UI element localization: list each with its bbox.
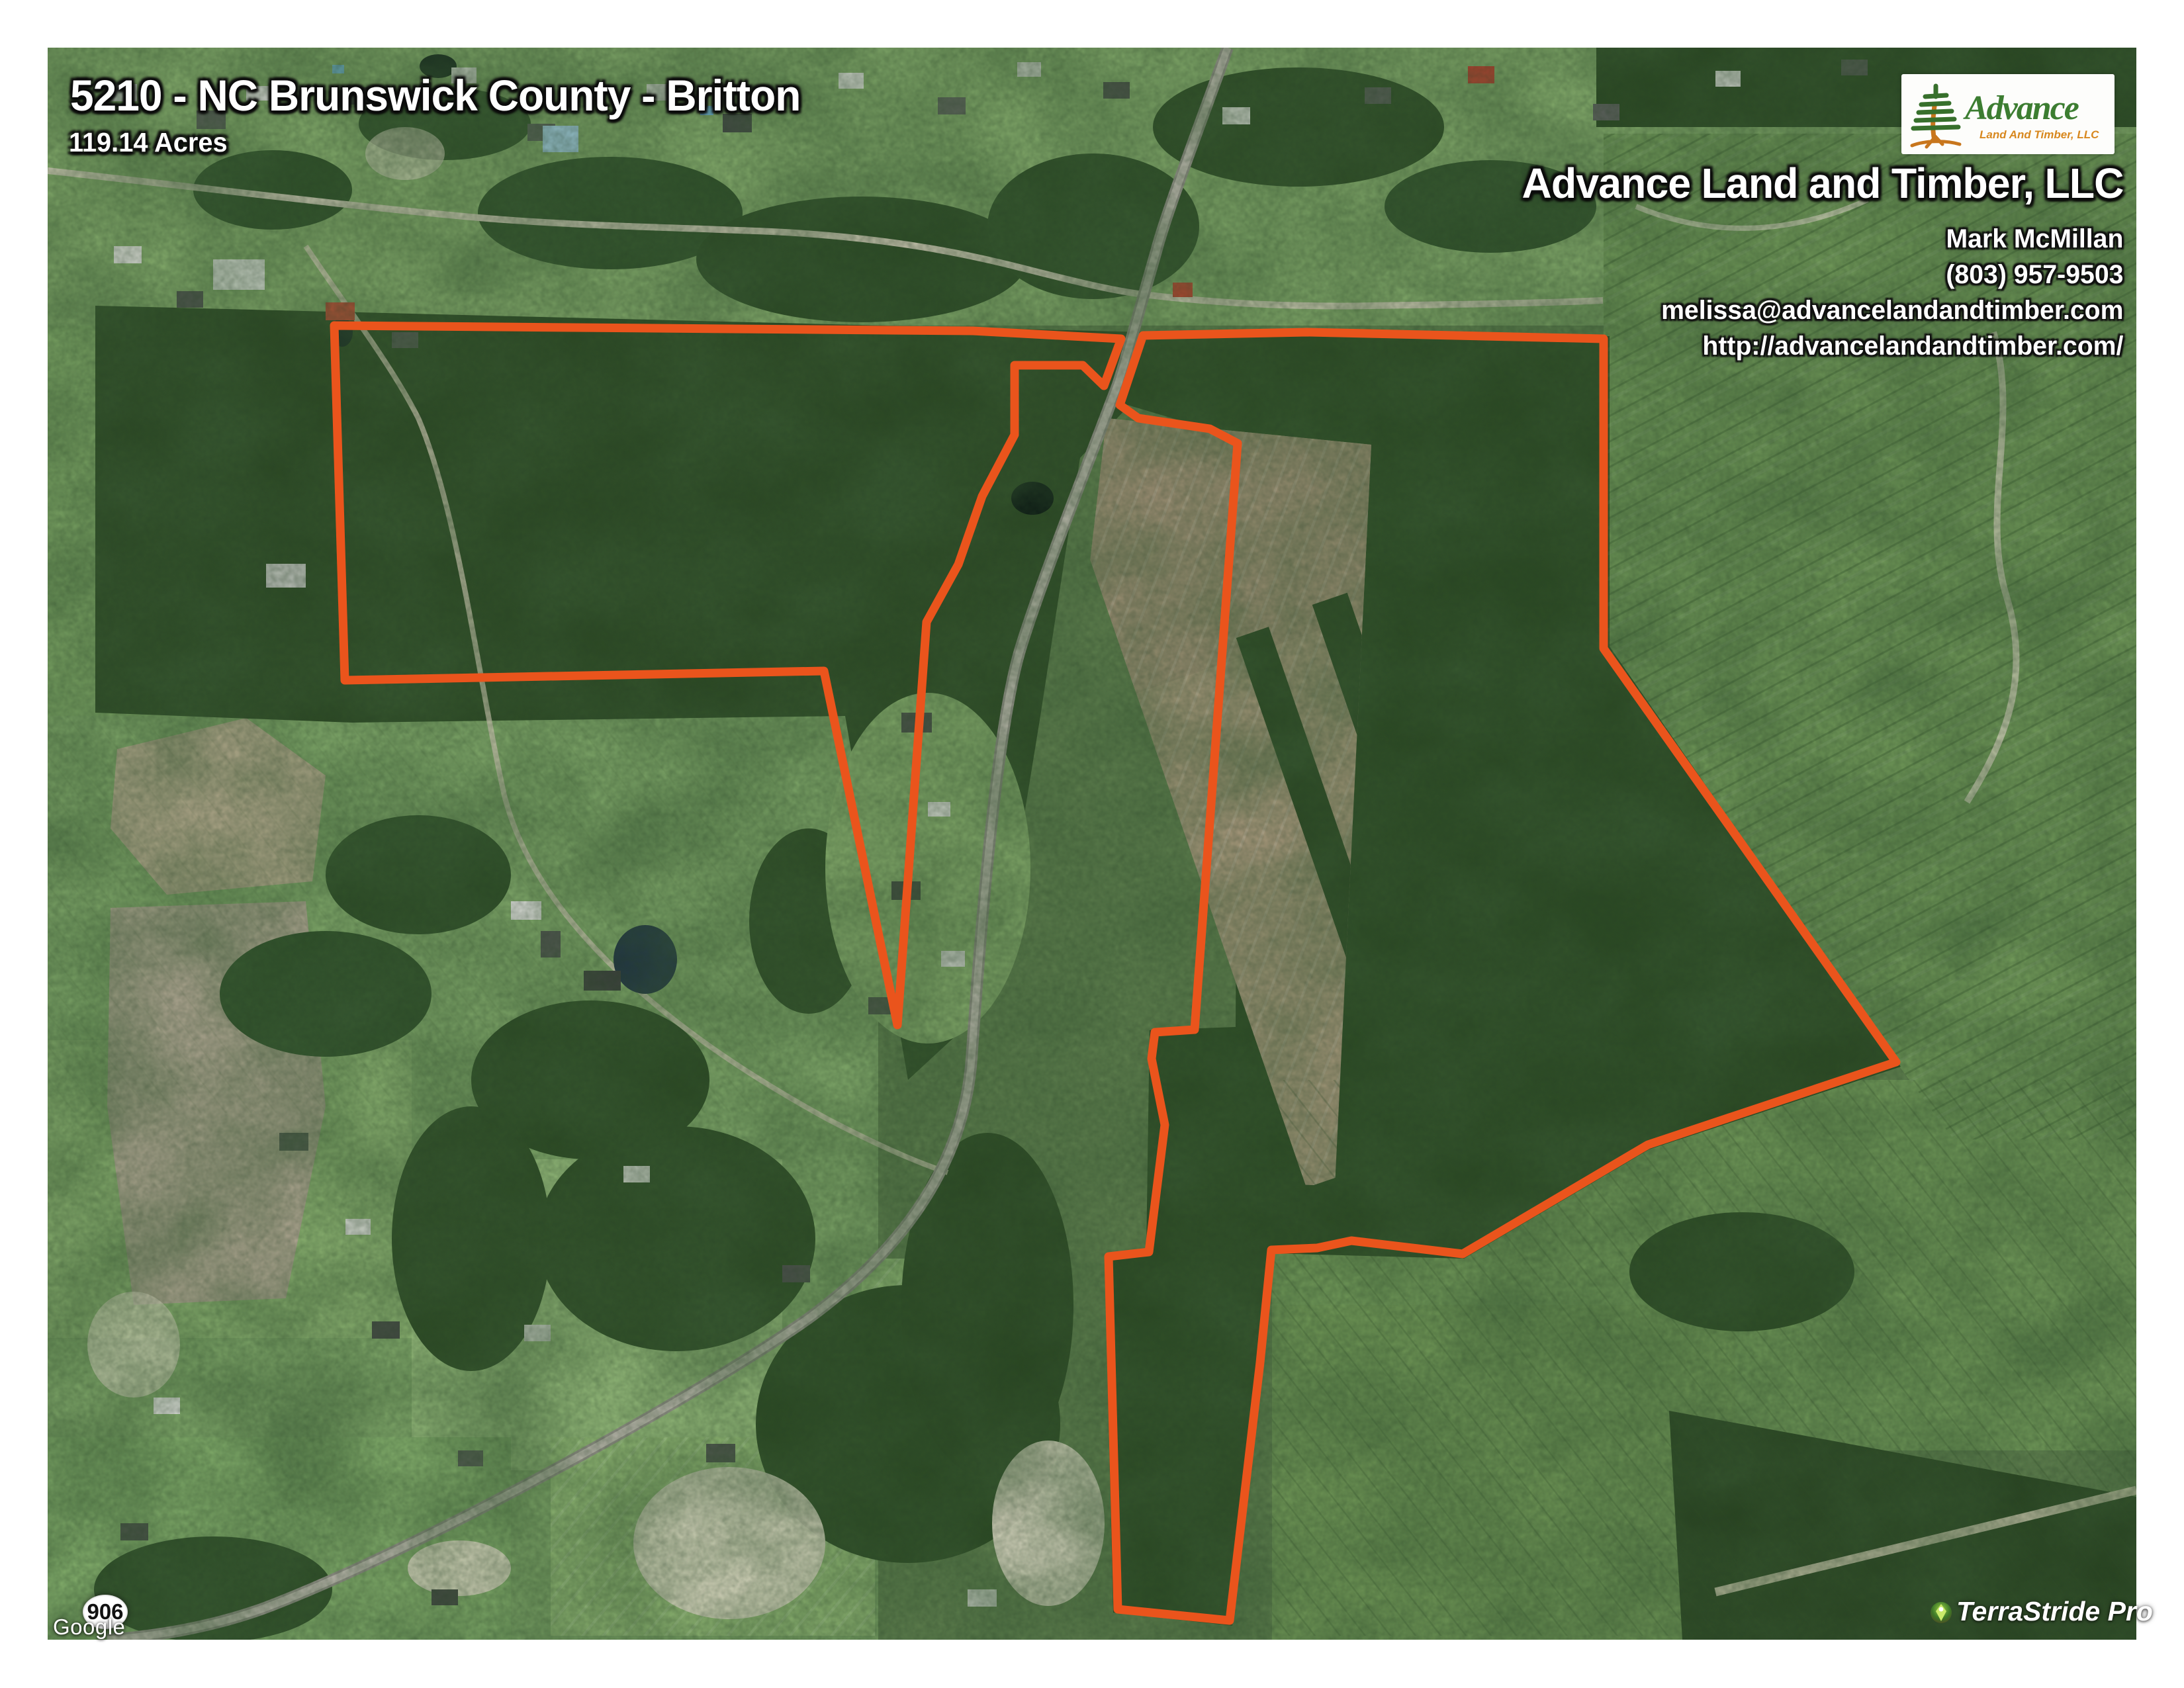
acreage-label: 119.14 Acres xyxy=(69,127,228,158)
pine-tree-icon xyxy=(1905,77,1965,153)
email-address: melissa@advancelandandtimber.com xyxy=(1522,292,2123,328)
company-name: Advance Land and Timber, LLC xyxy=(1522,159,2123,208)
website-url: http://advancelandandtimber.com/ xyxy=(1522,328,2123,364)
contact-block: Advance Land and Timber, LLC Mark McMill… xyxy=(1522,159,2123,364)
logo-subtitle: Land And Timber, LLC xyxy=(1979,128,2099,142)
logo-wordmark: Advance xyxy=(1965,89,2078,128)
agent-name: Mark McMillan xyxy=(1522,221,2123,257)
terrastride-watermark: TerraStride Pro xyxy=(1956,1596,2153,1627)
phone-number: (803) 957-9503 xyxy=(1522,257,2123,292)
page-title: 5210 - NC Brunswick County - Britton xyxy=(70,70,800,120)
terrastride-icon xyxy=(1930,1601,1952,1624)
listing-map-page: 5210 - NC Brunswick County - Britton 119… xyxy=(0,0,2184,1688)
company-logo: Advance Land And Timber, LLC xyxy=(1901,74,2115,154)
google-credit: Google xyxy=(53,1615,125,1640)
